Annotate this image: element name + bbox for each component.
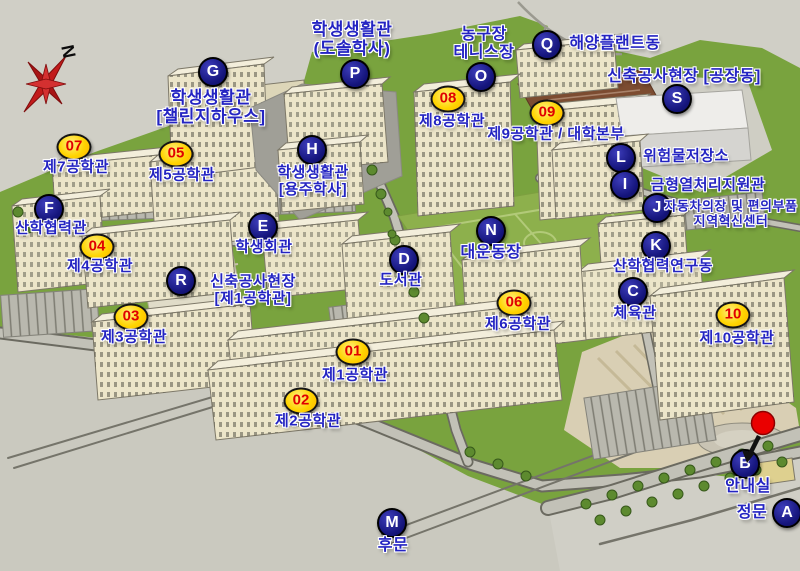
marker-eng-bldg-9-univ-hq[interactable]: 09	[530, 100, 565, 127]
label-marine-plant-bldg: 해양플랜트동	[569, 35, 660, 53]
label-eng-bldg-1: 제1공학관	[322, 368, 388, 385]
marker-info-booth[interactable]: B	[730, 449, 760, 479]
location-layer: G학생생활관[챌린지하우스]P학생생활관(도솔학사)O농구장테니스장Q해양플랜트…	[0, 0, 800, 571]
label-line: 학생생활관	[156, 88, 265, 107]
marker-eng-bldg-3[interactable]: 03	[114, 304, 149, 331]
label-line: [용주학사]	[277, 182, 349, 199]
label-line: 학생생활관	[312, 20, 393, 39]
label-hazmat-storage: 위험물저장소	[643, 149, 729, 166]
label-line: 제6공학관	[485, 317, 551, 334]
marker-library[interactable]: D	[389, 245, 419, 275]
label-eng-bldg-10: 제10공학관	[700, 331, 775, 348]
label-line: 금형열처리지원관	[651, 178, 765, 195]
label-line: 대운동장	[461, 244, 522, 262]
marker-dorm-dosol[interactable]: P	[340, 59, 370, 89]
marker-gymnasium[interactable]: C	[618, 277, 648, 307]
label-eng-bldg-9-univ-hq: 제9공학관 / 대학본부	[487, 127, 624, 144]
label-line: 제4공학관	[67, 259, 133, 276]
label-back-gate: 후문	[378, 537, 408, 555]
marker-industry-coop-research-bldg[interactable]: K	[641, 231, 671, 261]
label-industry-coop-bldg: 산학협력관	[15, 221, 87, 238]
label-line: (도솔학사)	[312, 39, 393, 58]
marker-mold-heat-treatment-center[interactable]: I	[610, 170, 640, 200]
label-auto-parts-regional-innovation-center: 자동차의장 및 편의부품지역혁신센터	[665, 199, 798, 228]
label-line: 자동차의장 및 편의부품	[665, 199, 798, 214]
marker-hazmat-storage[interactable]: L	[606, 143, 636, 173]
marker-main-athletic-field[interactable]: N	[476, 216, 506, 246]
label-line: 학생생활관	[277, 165, 349, 182]
marker-eng-bldg-5[interactable]: 05	[159, 141, 194, 168]
marker-eng-bldg-7[interactable]: 07	[57, 134, 92, 161]
label-eng-bldg-8: 제8공학관	[419, 114, 485, 131]
marker-marine-plant-bldg[interactable]: Q	[532, 30, 562, 60]
label-eng-bldg-2: 제2공학관	[275, 414, 341, 431]
label-line: 제1공학관	[322, 368, 388, 385]
label-eng-bldg-3: 제3공학관	[101, 330, 167, 347]
label-construction-site-factory: 신축공사현장 [공장동]	[607, 68, 761, 86]
label-line: 신축공사현장	[210, 274, 296, 291]
label-eng-bldg-6: 제6공학관	[485, 317, 551, 334]
marker-eng-bldg-2[interactable]: 02	[284, 388, 319, 415]
label-line: [챌린지하우스]	[156, 107, 265, 126]
label-line: 테니스장	[454, 44, 515, 62]
marker-construction-site-factory[interactable]: S	[662, 84, 692, 114]
label-line: 학생회관	[235, 240, 292, 257]
label-line: 위험물저장소	[643, 149, 729, 166]
marker-back-gate[interactable]: M	[377, 508, 407, 538]
label-industry-coop-research-bldg: 산학협력연구동	[613, 259, 713, 276]
label-line: 제3공학관	[101, 330, 167, 347]
label-main-gate: 정문	[737, 504, 767, 522]
label-construction-site-eng1: 신축공사현장[제1공학관]	[210, 274, 296, 308]
marker-student-union[interactable]: E	[248, 212, 278, 242]
label-dorm-yongju: 학생생활관[용주학사]	[277, 165, 349, 199]
label-line: 지역혁신센터	[665, 214, 798, 229]
label-dorm-dosol: 학생생활관(도솔학사)	[312, 20, 393, 58]
label-line: 체육관	[614, 306, 657, 323]
label-line: 제10공학관	[700, 331, 775, 348]
label-line: 도서관	[380, 273, 423, 290]
campus-map: N G학생생활관[챌린지하우스]P학생생활관(도솔학사)O농구장테니스장Q해양플…	[0, 0, 800, 571]
label-basketball-tennis-courts: 농구장테니스장	[454, 26, 515, 62]
label-gymnasium: 체육관	[614, 306, 657, 323]
label-mold-heat-treatment-center: 금형열처리지원관	[651, 178, 765, 195]
label-eng-bldg-7: 제7공학관	[43, 160, 109, 177]
marker-construction-site-eng1[interactable]: R	[166, 266, 196, 296]
label-line: 제9공학관 / 대학본부	[487, 127, 624, 144]
marker-eng-bldg-1[interactable]: 01	[336, 339, 371, 366]
marker-eng-bldg-10[interactable]: 10	[716, 302, 751, 329]
label-line: 제5공학관	[149, 168, 215, 185]
label-line: 후문	[378, 537, 408, 555]
marker-basketball-tennis-courts[interactable]: O	[466, 62, 496, 92]
label-line: 제2공학관	[275, 414, 341, 431]
label-info-booth: 안내실	[725, 478, 771, 496]
label-line: 산학협력관	[15, 221, 87, 238]
marker-dorm-challenge-house[interactable]: G	[198, 57, 228, 87]
label-line: [제1공학관]	[210, 291, 296, 308]
label-main-athletic-field: 대운동장	[461, 244, 522, 262]
label-line: 산학협력연구동	[613, 259, 713, 276]
label-line: 농구장	[454, 26, 515, 44]
label-line: 신축공사현장 [공장동]	[607, 68, 761, 86]
marker-dorm-yongju[interactable]: H	[297, 135, 327, 165]
label-eng-bldg-4: 제4공학관	[67, 259, 133, 276]
label-line: 안내실	[725, 478, 771, 496]
label-line: 정문	[737, 504, 767, 522]
label-dorm-challenge-house: 학생생활관[챌린지하우스]	[156, 88, 265, 126]
label-line: 제8공학관	[419, 114, 485, 131]
label-library: 도서관	[380, 273, 423, 290]
marker-eng-bldg-8[interactable]: 08	[431, 86, 466, 113]
label-line: 해양플랜트동	[569, 35, 660, 53]
marker-eng-bldg-4[interactable]: 04	[80, 234, 115, 261]
label-line: 제7공학관	[43, 160, 109, 177]
marker-main-gate[interactable]: A	[772, 498, 800, 528]
marker-eng-bldg-6[interactable]: 06	[497, 290, 532, 317]
label-student-union: 학생회관	[235, 240, 292, 257]
label-eng-bldg-5: 제5공학관	[149, 168, 215, 185]
